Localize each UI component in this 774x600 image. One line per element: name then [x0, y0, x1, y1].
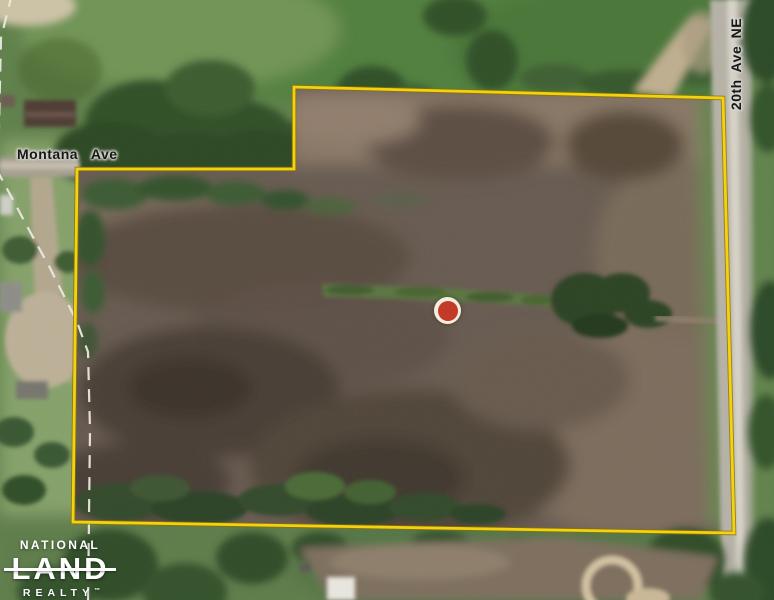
- logo-text-national: NATIONAL: [8, 539, 112, 551]
- aerial-imagery: [0, 0, 774, 600]
- logo-realty-word: REALTY: [23, 587, 94, 599]
- street-label-20th-ave-ne: 20th Ave NE: [728, 6, 744, 122]
- photo-grain-overlay: [0, 0, 774, 600]
- marker-dot-icon: [438, 301, 458, 321]
- trademark-symbol: ™: [94, 588, 100, 594]
- property-marker[interactable]: [434, 297, 461, 324]
- satellite-map: Montana Ave 20th Ave NE NATIONAL LAND RE…: [0, 0, 774, 600]
- logo-strikethrough-line: [4, 568, 116, 571]
- logo-text-realty: REALTY™: [11, 588, 112, 599]
- street-label-montana-ave: Montana Ave: [17, 146, 118, 162]
- national-land-realty-logo: NATIONAL LAND REALTY™: [6, 539, 112, 599]
